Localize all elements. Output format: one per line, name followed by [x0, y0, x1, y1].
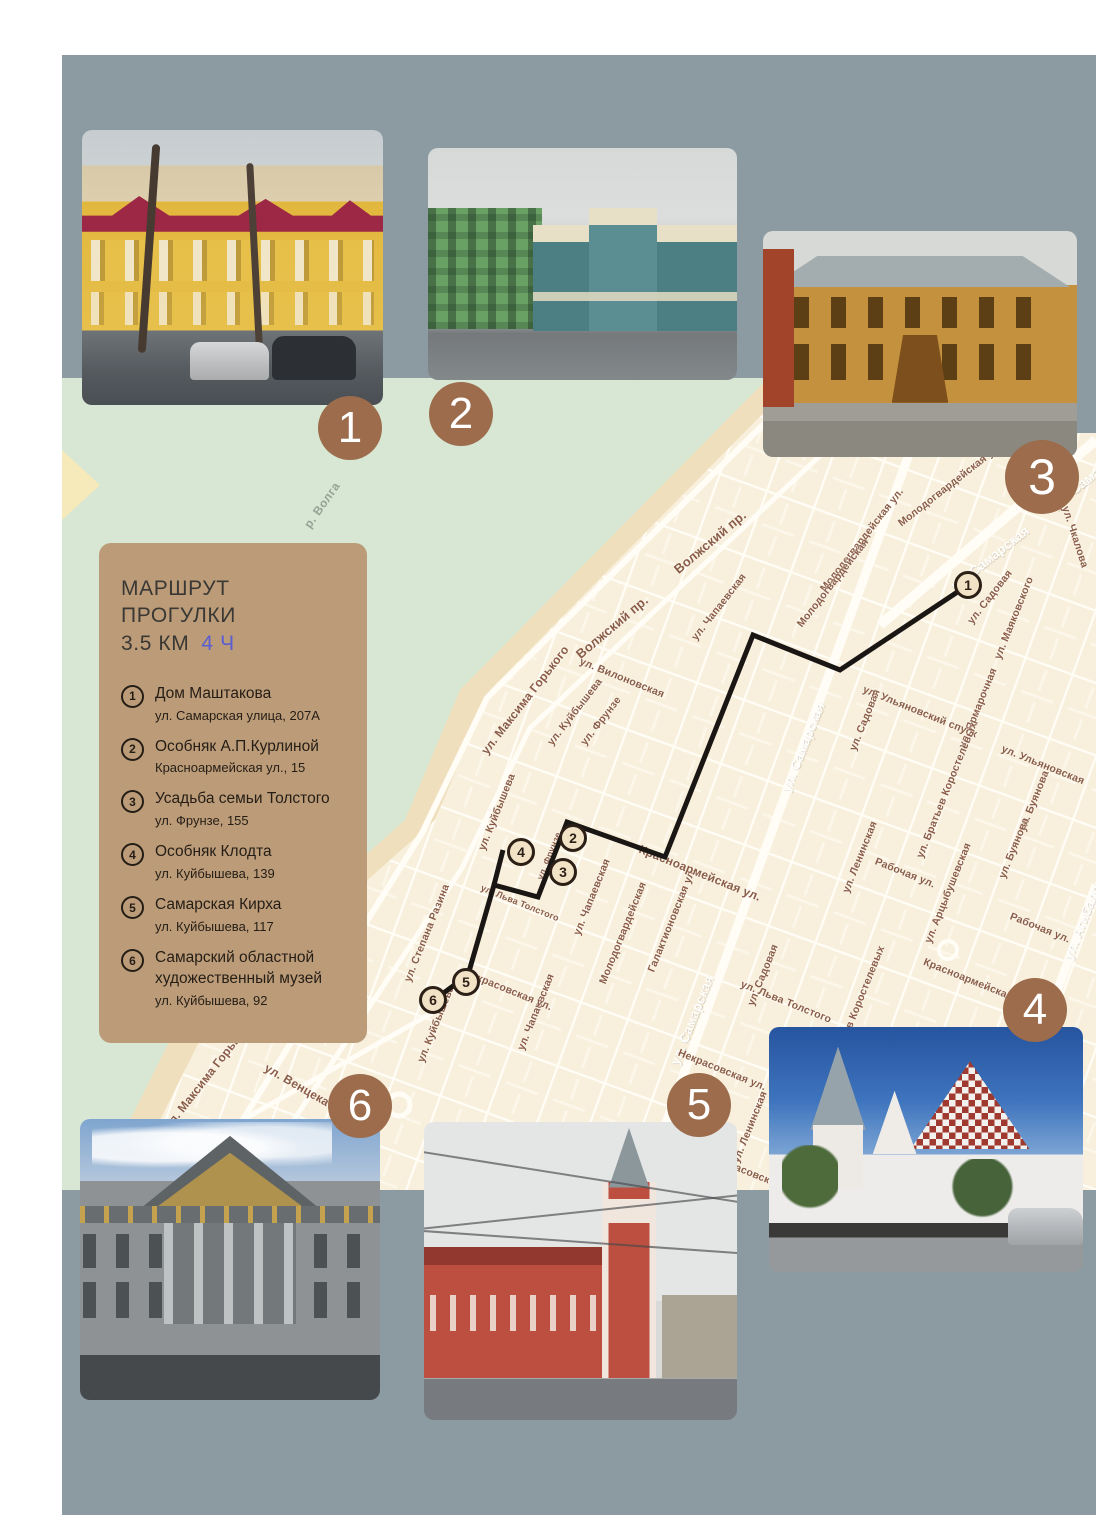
route-distance: 3.5 КМ	[121, 632, 189, 655]
tower-spire	[804, 1047, 873, 1130]
legend-item-address: ул. Куйбышева, 92	[155, 993, 347, 1008]
legend-item-title: Особняк А.П.Курлиной	[155, 737, 319, 758]
legend-item-title: Усадьба семьи Толстого	[155, 789, 330, 810]
tree	[782, 1145, 839, 1223]
legend-item-number: 2	[121, 738, 144, 761]
green-building	[428, 208, 542, 329]
legend-item-number: 5	[121, 896, 144, 919]
badge-number: 3	[1028, 448, 1056, 506]
legend-item-title: Особняк Клодта	[155, 842, 275, 863]
map-stop-marker-2: 2	[559, 824, 587, 852]
legend-item-2: 2 Особняк А.П.Курлиной Красноармейская у…	[121, 737, 347, 776]
legend-title: МАРШРУТ ПРОГУЛКИ	[121, 575, 347, 630]
legend-item-4: 4 Особняк Клодта ул. Куйбышева, 139	[121, 842, 347, 881]
entablature	[80, 1206, 380, 1223]
tree	[951, 1159, 1014, 1228]
church-roof	[424, 1247, 624, 1265]
map-stop-marker-1: 1	[954, 571, 982, 599]
legend-item-6: 6 Самарский областной художественный муз…	[121, 948, 347, 1008]
legend-distance-line: 3.5 КМ4 Ч	[121, 632, 347, 656]
photo-badge-6: 6	[328, 1074, 392, 1138]
checkered-roof	[910, 1061, 1029, 1149]
map-stop-marker-5: 5	[452, 968, 480, 996]
photo-badge-2: 2	[429, 382, 493, 446]
badge-number: 2	[449, 389, 473, 439]
mansion-tower	[589, 208, 657, 331]
photo-dom-mashtakova	[82, 130, 383, 405]
route-duration: 4 Ч	[201, 632, 234, 655]
photo-samarskaya-kirkha	[424, 1122, 737, 1420]
legend-item-number: 1	[121, 685, 144, 708]
photo-art-museum	[80, 1119, 380, 1400]
legend-item-number: 3	[121, 790, 144, 813]
photo-osobnyak-kurlinoy	[428, 148, 737, 380]
photo-badge-4: 4	[1003, 978, 1067, 1042]
belfry-band	[606, 1199, 653, 1223]
legend-item-title: Самарский областной художественный музей	[155, 948, 347, 990]
photo-osobnyak-klodta	[769, 1027, 1083, 1272]
columns	[164, 1223, 296, 1324]
badge-number: 5	[687, 1080, 711, 1130]
legend-items: 1 Дом Маштакова ул. Самарская улица, 207…	[121, 684, 347, 1008]
photo-badge-3: 3	[1005, 440, 1079, 514]
legend-item-address: ул. Куйбышева, 139	[155, 866, 275, 881]
photo-badge-1: 1	[318, 396, 382, 460]
legend-item-address: ул. Самарская улица, 207А	[155, 708, 320, 723]
map-stop-marker-3: 3	[549, 858, 577, 886]
legend-item-number: 6	[121, 949, 144, 972]
facade-trim	[533, 292, 737, 301]
map-stop-marker-4: 4	[507, 838, 535, 866]
photo-badge-5: 5	[667, 1073, 731, 1137]
map-stop-marker-6: 6	[419, 986, 447, 1014]
legend-item-number: 4	[121, 843, 144, 866]
route-legend-panel: МАРШРУТ ПРОГУЛКИ 3.5 КМ4 Ч 1 Дом Маштако…	[99, 543, 367, 1043]
legend-item-3: 3 Усадьба семьи Толстого ул. Фрунзе, 155	[121, 789, 347, 828]
window-row	[91, 292, 374, 325]
legend-item-address: ул. Фрунзе, 155	[155, 813, 330, 828]
power-wire	[424, 1190, 737, 1235]
window-row	[91, 240, 374, 281]
legend-item-title: Дом Маштакова	[155, 684, 320, 705]
window-row	[794, 297, 1051, 329]
legend-item-address: ул. Куйбышева, 117	[155, 919, 281, 934]
badge-number: 6	[348, 1081, 372, 1131]
walking-route-poster: р. ВолгаВолжский пр.Волжский пр.ул. Макс…	[0, 0, 1096, 1515]
black-car	[272, 336, 356, 380]
church-spire	[593, 1128, 665, 1188]
legend-item-5: 5 Самарская Кирха ул. Куйбышева, 117	[121, 895, 347, 934]
silver-car	[190, 342, 268, 381]
photo-usadba-tolstogo	[763, 231, 1077, 457]
crimson-roof	[82, 196, 383, 232]
brick-building	[763, 249, 794, 407]
legend-item-1: 1 Дом Маштакова ул. Самарская улица, 207…	[121, 684, 347, 723]
white-arcade	[430, 1295, 618, 1331]
legend-item-address: Красноармейская ул., 15	[155, 760, 319, 775]
background-building	[662, 1295, 737, 1378]
badge-number: 4	[1023, 985, 1047, 1035]
legend-item-title: Самарская Кирха	[155, 895, 281, 916]
badge-number: 1	[338, 403, 362, 453]
hipped-roof	[769, 256, 1070, 288]
white-gable	[873, 1091, 917, 1155]
silver-car	[1008, 1208, 1083, 1245]
